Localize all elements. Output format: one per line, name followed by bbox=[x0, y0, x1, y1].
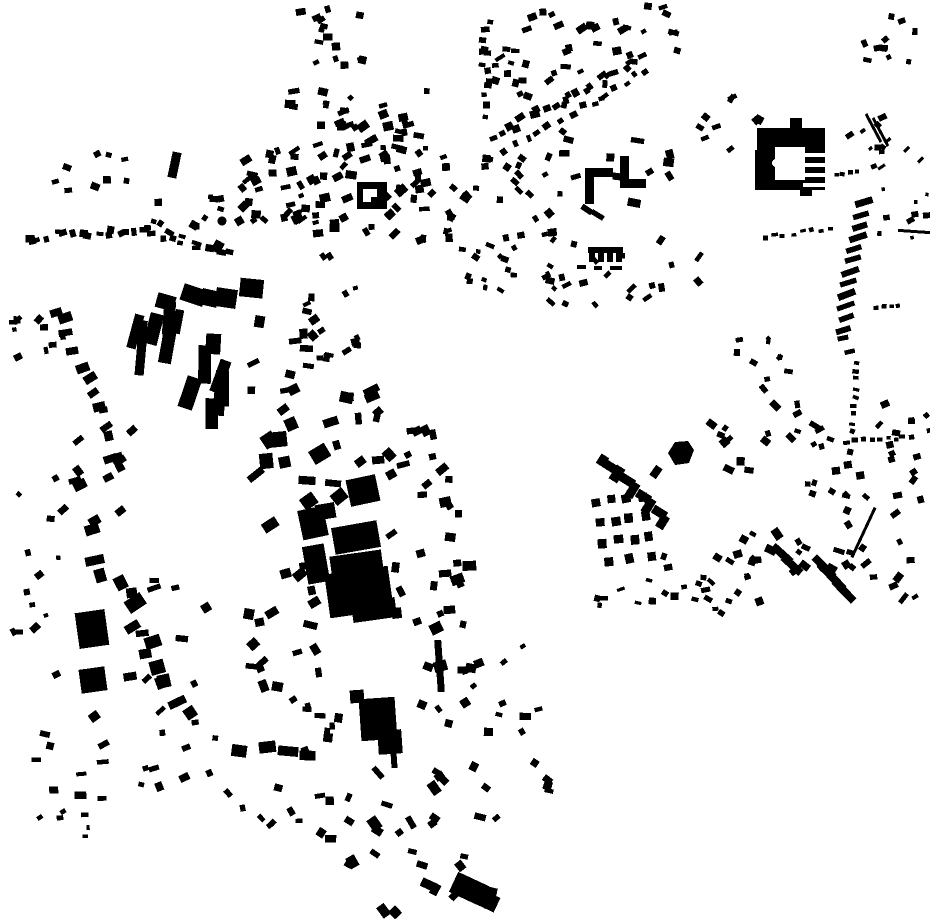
building bbox=[303, 363, 315, 370]
building bbox=[300, 345, 314, 352]
building bbox=[546, 297, 556, 307]
landmark-building bbox=[803, 183, 825, 187]
building bbox=[394, 183, 409, 197]
building bbox=[307, 329, 320, 342]
building bbox=[290, 153, 299, 160]
building bbox=[483, 284, 488, 290]
building bbox=[323, 353, 331, 362]
building bbox=[341, 151, 352, 162]
building bbox=[135, 629, 148, 637]
map-viewport bbox=[0, 0, 930, 924]
building bbox=[59, 808, 66, 815]
building bbox=[484, 728, 493, 736]
building bbox=[502, 234, 509, 242]
building bbox=[557, 117, 565, 124]
building bbox=[340, 61, 348, 69]
landmark-building bbox=[607, 253, 613, 262]
building bbox=[550, 236, 557, 244]
building bbox=[843, 441, 850, 445]
building bbox=[326, 797, 334, 806]
building bbox=[29, 602, 35, 608]
building bbox=[711, 123, 721, 130]
building bbox=[102, 472, 114, 483]
building bbox=[610, 84, 618, 92]
building bbox=[359, 154, 371, 164]
building bbox=[460, 853, 469, 860]
building bbox=[346, 142, 355, 152]
building bbox=[539, 8, 546, 15]
building bbox=[693, 276, 704, 287]
building bbox=[307, 596, 321, 609]
building bbox=[264, 606, 279, 620]
landmark-building bbox=[390, 752, 397, 768]
building bbox=[339, 161, 348, 170]
building bbox=[191, 719, 199, 725]
building bbox=[51, 474, 59, 482]
building bbox=[511, 49, 520, 54]
building bbox=[415, 173, 421, 182]
building bbox=[88, 710, 101, 723]
building bbox=[333, 148, 340, 158]
building bbox=[369, 224, 375, 230]
building bbox=[97, 739, 110, 749]
building bbox=[317, 122, 325, 130]
building bbox=[83, 834, 89, 838]
building bbox=[332, 440, 341, 451]
building bbox=[142, 765, 149, 772]
building bbox=[861, 437, 866, 442]
building bbox=[393, 135, 404, 142]
building bbox=[517, 154, 527, 163]
building bbox=[442, 163, 450, 171]
building bbox=[671, 592, 679, 600]
building bbox=[303, 620, 318, 630]
building bbox=[43, 613, 49, 618]
building bbox=[314, 793, 325, 799]
building bbox=[138, 781, 145, 787]
building bbox=[46, 515, 54, 522]
building bbox=[190, 679, 198, 688]
building bbox=[376, 903, 391, 919]
building bbox=[548, 11, 556, 18]
building bbox=[496, 287, 504, 294]
building bbox=[453, 559, 462, 567]
building bbox=[863, 57, 872, 63]
building bbox=[909, 434, 915, 440]
building bbox=[81, 812, 89, 817]
building bbox=[415, 185, 425, 194]
building bbox=[663, 563, 673, 571]
building bbox=[597, 602, 602, 608]
building bbox=[644, 2, 653, 10]
building bbox=[481, 26, 490, 32]
building bbox=[147, 583, 162, 592]
building bbox=[544, 788, 554, 794]
building bbox=[889, 304, 894, 308]
building bbox=[514, 186, 523, 195]
building bbox=[353, 285, 359, 290]
building bbox=[542, 171, 549, 178]
building bbox=[214, 287, 238, 309]
building bbox=[223, 788, 233, 798]
building bbox=[287, 383, 301, 396]
building bbox=[338, 212, 349, 222]
building bbox=[15, 629, 23, 634]
building bbox=[422, 661, 434, 672]
building bbox=[892, 571, 904, 583]
building bbox=[598, 96, 605, 102]
building bbox=[319, 252, 327, 261]
building bbox=[521, 59, 530, 68]
building bbox=[201, 214, 208, 222]
building bbox=[558, 127, 567, 136]
building bbox=[313, 229, 324, 237]
building bbox=[498, 699, 507, 707]
building bbox=[147, 231, 156, 237]
building bbox=[83, 232, 92, 240]
building bbox=[344, 793, 352, 803]
landmark-building bbox=[649, 465, 662, 479]
building bbox=[276, 403, 290, 416]
building bbox=[96, 232, 103, 237]
building bbox=[763, 235, 768, 240]
building bbox=[123, 178, 129, 185]
building bbox=[664, 170, 674, 181]
building bbox=[302, 706, 311, 712]
building bbox=[849, 422, 855, 426]
building bbox=[881, 35, 890, 44]
building bbox=[705, 418, 717, 430]
building bbox=[517, 231, 525, 239]
building bbox=[519, 713, 531, 720]
building bbox=[736, 457, 744, 466]
building bbox=[358, 55, 368, 64]
building bbox=[794, 538, 802, 547]
building bbox=[559, 150, 569, 156]
building bbox=[414, 148, 423, 157]
building bbox=[656, 235, 666, 246]
building bbox=[445, 476, 453, 483]
building bbox=[874, 306, 879, 311]
building bbox=[271, 681, 283, 692]
building bbox=[43, 347, 48, 355]
building bbox=[917, 156, 924, 163]
building bbox=[634, 601, 641, 606]
building bbox=[612, 46, 622, 55]
building bbox=[343, 393, 354, 402]
building bbox=[123, 672, 137, 682]
building bbox=[603, 270, 611, 278]
building bbox=[570, 240, 577, 247]
building bbox=[295, 8, 306, 16]
building bbox=[74, 791, 86, 799]
building bbox=[544, 152, 552, 162]
building bbox=[468, 761, 479, 772]
building bbox=[508, 60, 515, 66]
building bbox=[247, 386, 255, 394]
building bbox=[563, 135, 574, 144]
building bbox=[429, 429, 437, 440]
building bbox=[278, 455, 291, 468]
building bbox=[499, 147, 508, 156]
landmark-building bbox=[371, 197, 386, 209]
building bbox=[771, 233, 778, 237]
building bbox=[175, 635, 188, 643]
building bbox=[561, 300, 569, 308]
building bbox=[194, 223, 200, 229]
building bbox=[833, 547, 845, 555]
building bbox=[631, 70, 638, 77]
building bbox=[372, 406, 384, 418]
building bbox=[532, 129, 541, 137]
building bbox=[883, 215, 890, 221]
building bbox=[372, 456, 385, 465]
building bbox=[106, 226, 114, 235]
building bbox=[315, 713, 326, 719]
building bbox=[417, 492, 427, 498]
building bbox=[420, 234, 427, 242]
building bbox=[105, 152, 112, 158]
building bbox=[579, 101, 587, 109]
building bbox=[770, 527, 783, 541]
building bbox=[440, 154, 448, 160]
building bbox=[332, 42, 341, 50]
building bbox=[435, 462, 449, 476]
building bbox=[516, 90, 524, 97]
building bbox=[712, 607, 718, 612]
building bbox=[818, 229, 824, 233]
building bbox=[312, 220, 319, 226]
building bbox=[316, 355, 323, 361]
building bbox=[847, 448, 854, 455]
building bbox=[277, 745, 298, 757]
building bbox=[837, 288, 857, 301]
building bbox=[192, 246, 201, 250]
building bbox=[673, 47, 681, 55]
building bbox=[413, 132, 424, 139]
building bbox=[308, 443, 331, 465]
building bbox=[923, 412, 930, 419]
building bbox=[354, 455, 367, 468]
building bbox=[430, 581, 438, 591]
building bbox=[473, 185, 479, 191]
building bbox=[808, 227, 814, 233]
building bbox=[749, 530, 757, 537]
building bbox=[838, 313, 854, 323]
landmark-building bbox=[167, 151, 181, 178]
building bbox=[695, 123, 704, 132]
building bbox=[289, 103, 299, 110]
building bbox=[532, 215, 540, 223]
building bbox=[811, 479, 818, 486]
building bbox=[355, 412, 362, 424]
building bbox=[880, 399, 891, 409]
building bbox=[512, 140, 519, 148]
building bbox=[848, 231, 868, 243]
building bbox=[843, 461, 852, 469]
building bbox=[72, 435, 84, 446]
building bbox=[887, 456, 895, 464]
building bbox=[547, 228, 557, 237]
building bbox=[212, 735, 218, 741]
building bbox=[892, 429, 901, 436]
building bbox=[794, 400, 800, 408]
building bbox=[285, 369, 296, 379]
building bbox=[13, 316, 21, 324]
building bbox=[487, 20, 493, 25]
building bbox=[274, 147, 281, 155]
building bbox=[65, 346, 78, 355]
building bbox=[754, 596, 764, 606]
building bbox=[557, 191, 563, 197]
building bbox=[725, 557, 735, 566]
building bbox=[205, 769, 213, 778]
building bbox=[712, 552, 723, 562]
building bbox=[734, 349, 741, 356]
building bbox=[371, 766, 384, 780]
building bbox=[424, 88, 430, 94]
building bbox=[545, 277, 555, 285]
landmark-building bbox=[588, 247, 623, 253]
building bbox=[296, 819, 303, 824]
landmark-building bbox=[377, 729, 403, 755]
building bbox=[597, 539, 607, 549]
building bbox=[486, 78, 492, 83]
building bbox=[780, 234, 785, 238]
building bbox=[243, 608, 255, 620]
building bbox=[749, 358, 758, 367]
building bbox=[467, 278, 473, 284]
building bbox=[853, 387, 860, 392]
building bbox=[93, 568, 107, 584]
building bbox=[419, 206, 430, 211]
building bbox=[617, 586, 626, 592]
building bbox=[870, 574, 878, 580]
building bbox=[534, 706, 543, 712]
building bbox=[611, 516, 622, 526]
building bbox=[818, 443, 825, 450]
building bbox=[521, 25, 532, 33]
building bbox=[290, 212, 304, 225]
building bbox=[231, 744, 248, 758]
building bbox=[87, 825, 90, 830]
building bbox=[341, 193, 354, 204]
building bbox=[84, 554, 105, 567]
building bbox=[527, 12, 538, 22]
building bbox=[72, 465, 84, 478]
building bbox=[324, 5, 331, 13]
building bbox=[13, 352, 23, 362]
building bbox=[126, 425, 138, 437]
building bbox=[892, 491, 902, 499]
building bbox=[254, 186, 263, 193]
building bbox=[903, 146, 910, 153]
building bbox=[49, 786, 58, 793]
building bbox=[246, 637, 260, 651]
landmark-building bbox=[755, 150, 758, 190]
building bbox=[93, 150, 102, 159]
building bbox=[39, 730, 50, 738]
building bbox=[844, 254, 861, 264]
building bbox=[273, 783, 283, 792]
building bbox=[289, 337, 302, 344]
building bbox=[410, 194, 417, 203]
landmark-building bbox=[350, 690, 365, 704]
building bbox=[658, 4, 668, 11]
building bbox=[317, 326, 326, 334]
building bbox=[544, 208, 555, 219]
building bbox=[560, 64, 571, 70]
building bbox=[850, 404, 857, 408]
building bbox=[926, 427, 930, 433]
building bbox=[558, 273, 565, 281]
building bbox=[896, 538, 903, 546]
building bbox=[389, 228, 401, 240]
building bbox=[455, 510, 462, 517]
building bbox=[299, 751, 315, 761]
building bbox=[177, 240, 183, 245]
building bbox=[279, 568, 292, 580]
building bbox=[859, 128, 866, 134]
building bbox=[131, 228, 137, 236]
building bbox=[862, 493, 870, 501]
building bbox=[323, 733, 333, 743]
building bbox=[31, 757, 41, 762]
building bbox=[474, 812, 487, 821]
building bbox=[875, 420, 884, 429]
building bbox=[428, 453, 436, 461]
building bbox=[642, 293, 652, 302]
building bbox=[288, 88, 300, 95]
landmark-building bbox=[346, 474, 381, 507]
building bbox=[908, 418, 915, 424]
building bbox=[877, 437, 882, 441]
building bbox=[606, 153, 614, 161]
building bbox=[591, 301, 599, 309]
building bbox=[144, 225, 151, 231]
building bbox=[877, 113, 887, 122]
building bbox=[882, 304, 887, 309]
building bbox=[239, 804, 245, 812]
building bbox=[56, 815, 63, 821]
building bbox=[518, 727, 526, 736]
landmark-building bbox=[331, 520, 381, 555]
building bbox=[681, 584, 687, 589]
building bbox=[640, 28, 647, 34]
building bbox=[626, 51, 634, 59]
building bbox=[608, 69, 618, 77]
building bbox=[317, 151, 328, 161]
building bbox=[886, 436, 890, 440]
building bbox=[511, 244, 518, 251]
building bbox=[594, 595, 601, 603]
building bbox=[648, 597, 656, 604]
building bbox=[90, 182, 101, 192]
building bbox=[570, 88, 580, 98]
building bbox=[624, 553, 634, 564]
building bbox=[851, 438, 858, 443]
building bbox=[645, 578, 652, 583]
building bbox=[852, 369, 859, 374]
building bbox=[836, 300, 855, 311]
building bbox=[784, 368, 793, 374]
building bbox=[739, 534, 750, 545]
building bbox=[481, 277, 487, 283]
building bbox=[626, 283, 637, 294]
building bbox=[526, 134, 532, 142]
building bbox=[553, 20, 565, 30]
building bbox=[791, 233, 796, 237]
